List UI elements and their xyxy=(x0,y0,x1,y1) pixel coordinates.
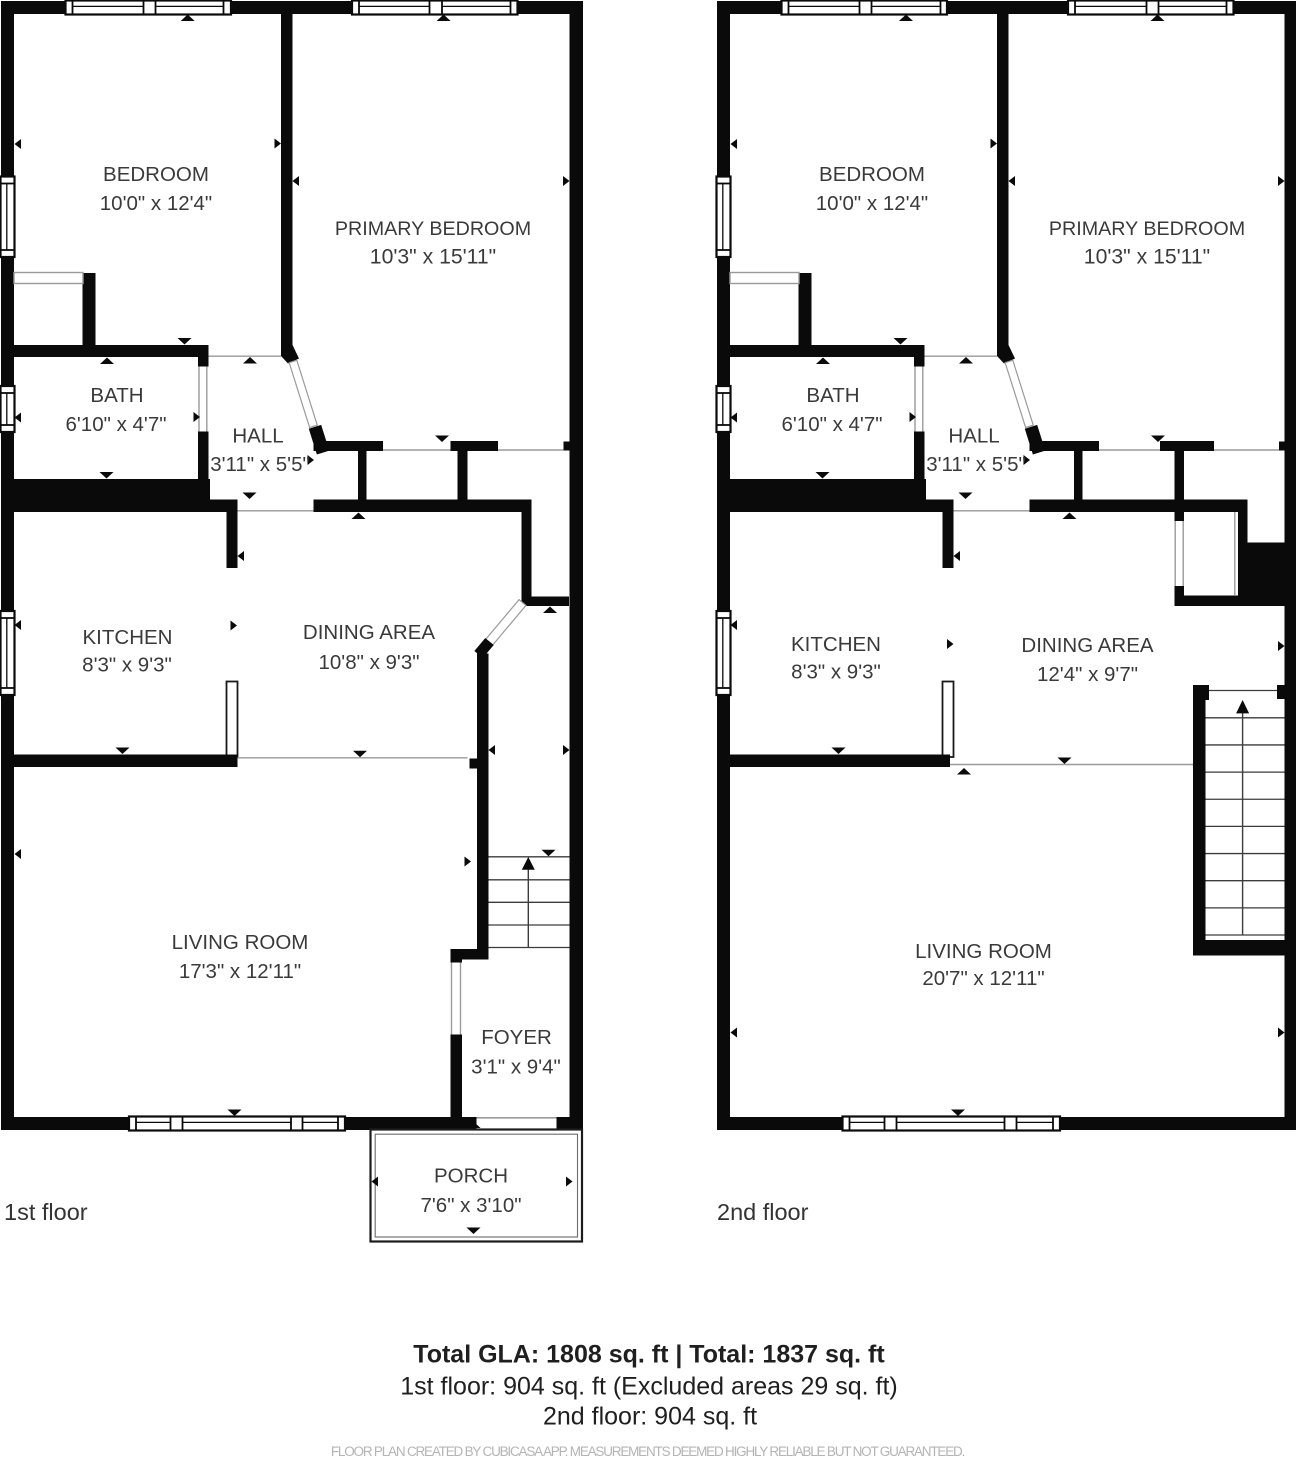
svg-text:20'7" x 12'11": 20'7" x 12'11" xyxy=(922,967,1044,990)
svg-text:HALL: HALL xyxy=(232,425,283,448)
svg-text:PORCH: PORCH xyxy=(434,1165,508,1188)
svg-text:DINING AREA: DINING AREA xyxy=(1021,634,1153,657)
svg-text:17'3" x 12'11": 17'3" x 12'11" xyxy=(179,960,301,983)
svg-text:3'1" x 9'4": 3'1" x 9'4" xyxy=(471,1056,561,1079)
svg-text:FLOOR PLAN CREATED BY CUBICASA: FLOOR PLAN CREATED BY CUBICASA APP. MEAS… xyxy=(331,1444,965,1459)
svg-text:3'11" x 5'5": 3'11" x 5'5" xyxy=(210,453,310,476)
svg-text:2nd floor: 2nd floor xyxy=(717,1199,809,1225)
svg-text:1st floor: 1st floor xyxy=(4,1199,88,1225)
svg-text:LIVING ROOM: LIVING ROOM xyxy=(915,940,1052,963)
svg-text:Total GLA: 1808 sq. ft | Total: Total GLA: 1808 sq. ft | Total: 1837 sq.… xyxy=(413,1341,885,1369)
svg-text:6'10" x 4'7": 6'10" x 4'7" xyxy=(781,413,882,436)
svg-text:10'0" x 12'4": 10'0" x 12'4" xyxy=(816,192,928,215)
svg-text:7'6" x 3'10": 7'6" x 3'10" xyxy=(420,1194,521,1217)
svg-text:BEDROOM: BEDROOM xyxy=(103,163,209,186)
svg-text:HALL: HALL xyxy=(948,425,999,448)
svg-text:KITCHEN: KITCHEN xyxy=(791,633,881,656)
svg-text:10'3" x 15'11": 10'3" x 15'11" xyxy=(1084,246,1210,269)
svg-text:8'3" x 9'3": 8'3" x 9'3" xyxy=(791,661,881,684)
svg-text:BATH: BATH xyxy=(806,384,859,407)
svg-text:PRIMARY BEDROOM: PRIMARY BEDROOM xyxy=(335,218,531,240)
svg-text:PRIMARY BEDROOM: PRIMARY BEDROOM xyxy=(1049,218,1245,240)
svg-text:10'8" x 9'3": 10'8" x 9'3" xyxy=(318,651,419,674)
svg-text:DINING AREA: DINING AREA xyxy=(303,621,435,644)
svg-text:6'10" x 4'7": 6'10" x 4'7" xyxy=(65,413,166,436)
svg-text:BATH: BATH xyxy=(90,384,143,407)
svg-text:LIVING ROOM: LIVING ROOM xyxy=(172,931,309,954)
svg-text:BEDROOM: BEDROOM xyxy=(819,163,925,186)
svg-text:FOYER: FOYER xyxy=(481,1026,552,1049)
svg-text:10'0" x 12'4": 10'0" x 12'4" xyxy=(100,192,212,215)
svg-text:2nd floor: 904 sq. ft: 2nd floor: 904 sq. ft xyxy=(543,1403,757,1431)
svg-text:10'3" x 15'11": 10'3" x 15'11" xyxy=(370,246,496,269)
svg-text:KITCHEN: KITCHEN xyxy=(83,626,173,649)
svg-text:3'11" x 5'5": 3'11" x 5'5" xyxy=(926,453,1026,476)
svg-text:12'4" x 9'7": 12'4" x 9'7" xyxy=(1037,663,1138,686)
svg-text:8'3" x 9'3": 8'3" x 9'3" xyxy=(82,654,172,677)
svg-text:1st floor: 904 sq. ft (Exclude: 1st floor: 904 sq. ft (Excluded areas 29… xyxy=(400,1373,897,1401)
